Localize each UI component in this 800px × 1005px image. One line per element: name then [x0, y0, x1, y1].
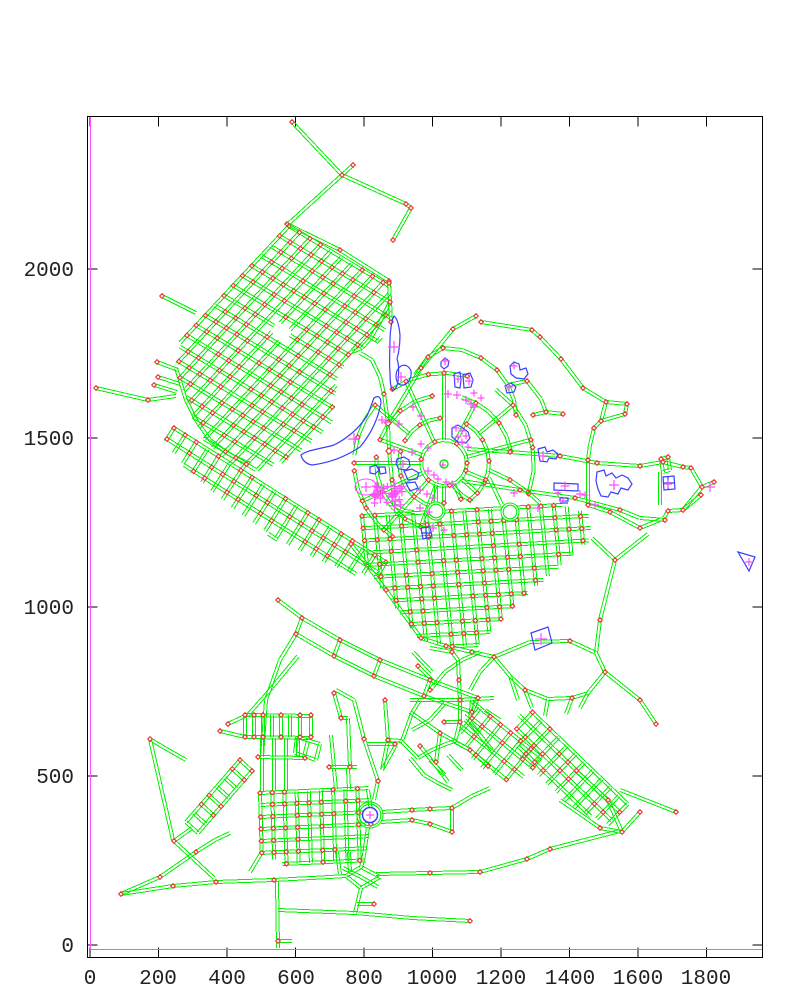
svg-text:600: 600: [277, 968, 315, 991]
svg-text:0: 0: [61, 936, 74, 959]
svg-text:800: 800: [345, 968, 383, 991]
svg-text:0: 0: [84, 968, 97, 991]
svg-text:1800: 1800: [681, 968, 731, 991]
svg-text:1400: 1400: [545, 968, 595, 991]
svg-text:200: 200: [139, 968, 177, 991]
svg-text:500: 500: [36, 767, 74, 790]
svg-text:1600: 1600: [613, 968, 663, 991]
svg-text:1500: 1500: [24, 429, 74, 452]
svg-text:1000: 1000: [24, 598, 74, 621]
svg-text:2000: 2000: [24, 260, 74, 283]
svg-text:400: 400: [208, 968, 246, 991]
svg-text:1200: 1200: [476, 968, 526, 991]
svg-text:1000: 1000: [407, 968, 457, 991]
